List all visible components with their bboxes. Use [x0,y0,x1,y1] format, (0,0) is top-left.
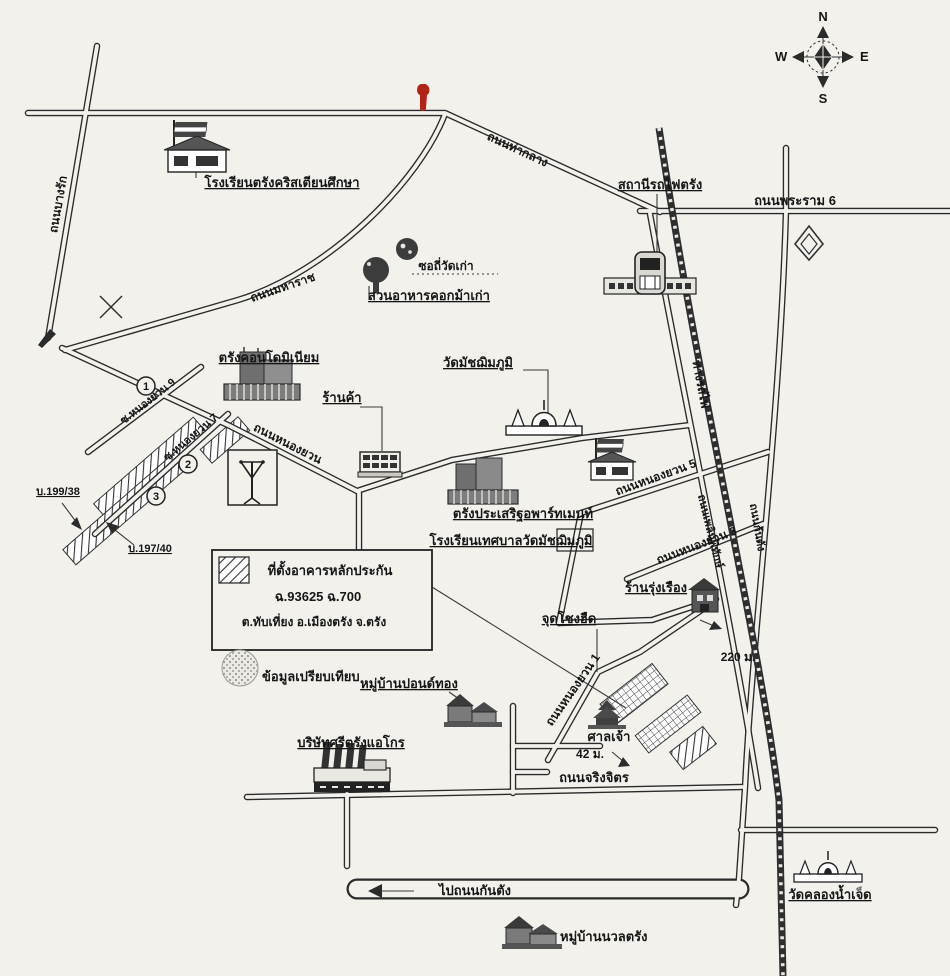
place-label-b197: บ.197/40 [128,543,172,555]
road-label-nong-yuan-3: ถนนหนองยวน 3 [654,523,739,567]
place-label-train-station: สถานีรถไฟตรัง [618,176,702,192]
road-labels: ถนนบางรัก ถนนมหาราช ถนนท่ากลาง ถนนพระราม… [46,129,836,898]
legend-box: ที่ตั้งอาคารหลักประกัน ฉ.93625 ฉ.700 ต.ท… [212,550,432,650]
compass-s-label: S [819,91,828,106]
pylon-icon [228,450,277,505]
place-label-compare: ข้อมูลเปรียบเทียบ [262,669,360,685]
svg-text:1: 1 [143,381,149,393]
target-site-block [670,726,717,769]
place-label-condo: ตรังคอนโดมิเนียม [219,349,320,365]
place-label-chong-hued: จุดโชงฮืด [542,610,597,627]
compass-rose-icon: N W E S [775,9,869,106]
road-label-rama6: ถนนพระราม 6 [754,193,836,208]
road-label-maharat: ถนนมหาราช [248,270,316,305]
place-label-apartment: ตรังประเสริฐอพาร์ทเมนท์ [453,506,593,523]
distance-label-42m: 42 ม. [576,747,604,761]
map-canvas: ที่ตั้งอาคารหลักประกัน ฉ.93625 ฉ.700 ต.ท… [0,0,950,976]
place-label-municipal-school: โรงเรียนเทศบาลวัดมัชฌิมภูมิ [429,532,593,549]
spotted-stone-icon [396,238,418,260]
svg-text:2: 2 [185,459,191,471]
place-label-wat-khlong: วัดคลองน้ำเจ็ด [788,884,871,902]
legend-line1: ที่ตั้งอาคารหลักประกัน [268,560,393,578]
road-label-jingjit: ถนนจริงจิตร [559,770,629,785]
place-label-b199: บ.199/38 [36,486,80,498]
road-label-tha-klang: ถนนท่ากลาง [485,129,550,169]
place-label-shop: ร้านค้า [322,390,361,405]
compass-e-label: E [860,49,869,64]
houses-icon-nuan-trang [502,916,562,949]
place-label-pond-thong: หมู่บ้านปอนด์ทอง [360,676,458,692]
apartment-icon [448,458,518,504]
temple-icon-khlong [794,851,862,882]
plot-badge-2: 2 [179,455,197,473]
school-icon [164,120,230,172]
red-marker-icon [417,84,429,111]
svg-text:3: 3 [153,491,159,503]
road-label-railway: ทางรถไฟ [689,359,713,410]
plot-badge-3: 3 [147,487,165,505]
legend-hatch-swatch [219,557,249,583]
crossing-x-mark [100,296,122,318]
place-label-sri-trang: บริษัทศรีตรังแอโกร [297,734,404,750]
road-label-to-kantang: ไปถนนกันตัง [437,882,511,898]
houses-icon-pond-thong [444,694,502,727]
distance-label-220m: 220 ม. [721,650,756,664]
school-flag-icon [588,438,636,480]
compass-w-label: W [775,49,788,64]
shop-leader [360,407,382,451]
legend-line3: ต.ทับเที่ยง อ.เมืองตรัง จ.ตรัง [242,613,387,629]
place-label-rung-rueang: ร้านรุ่งเรือง [625,580,687,596]
legend-line2: ฉ.93625 ฉ.700 [275,589,361,604]
place-label-restaurant: สวนอาหารคอกม้าเก่า [368,288,490,303]
diamond-icon [795,226,823,260]
trang-location-map: ที่ตั้งอาคารหลักประกัน ฉ.93625 ฉ.700 ต.ท… [0,0,950,976]
place-label-shrine: ศาลเจ้า [588,729,631,744]
shop-icon [358,452,402,477]
place-label-nuan-trang: หมู่บ้านนวลตรัง [560,929,648,945]
rung-rueang-shop-icon [688,578,720,612]
comparison-dotted-circle [222,650,258,686]
temple-icon-matchim [506,400,582,435]
compass-n-label: N [818,9,827,24]
place-label-christian-school: โรงเรียนตรังคริสเตียนศึกษา [203,174,359,190]
place-label-old-temple-soi: ซอถี่วัดเก่า [418,257,473,273]
place-label-wat-matchim: วัดมัชฌิมภูมิ [443,355,513,371]
